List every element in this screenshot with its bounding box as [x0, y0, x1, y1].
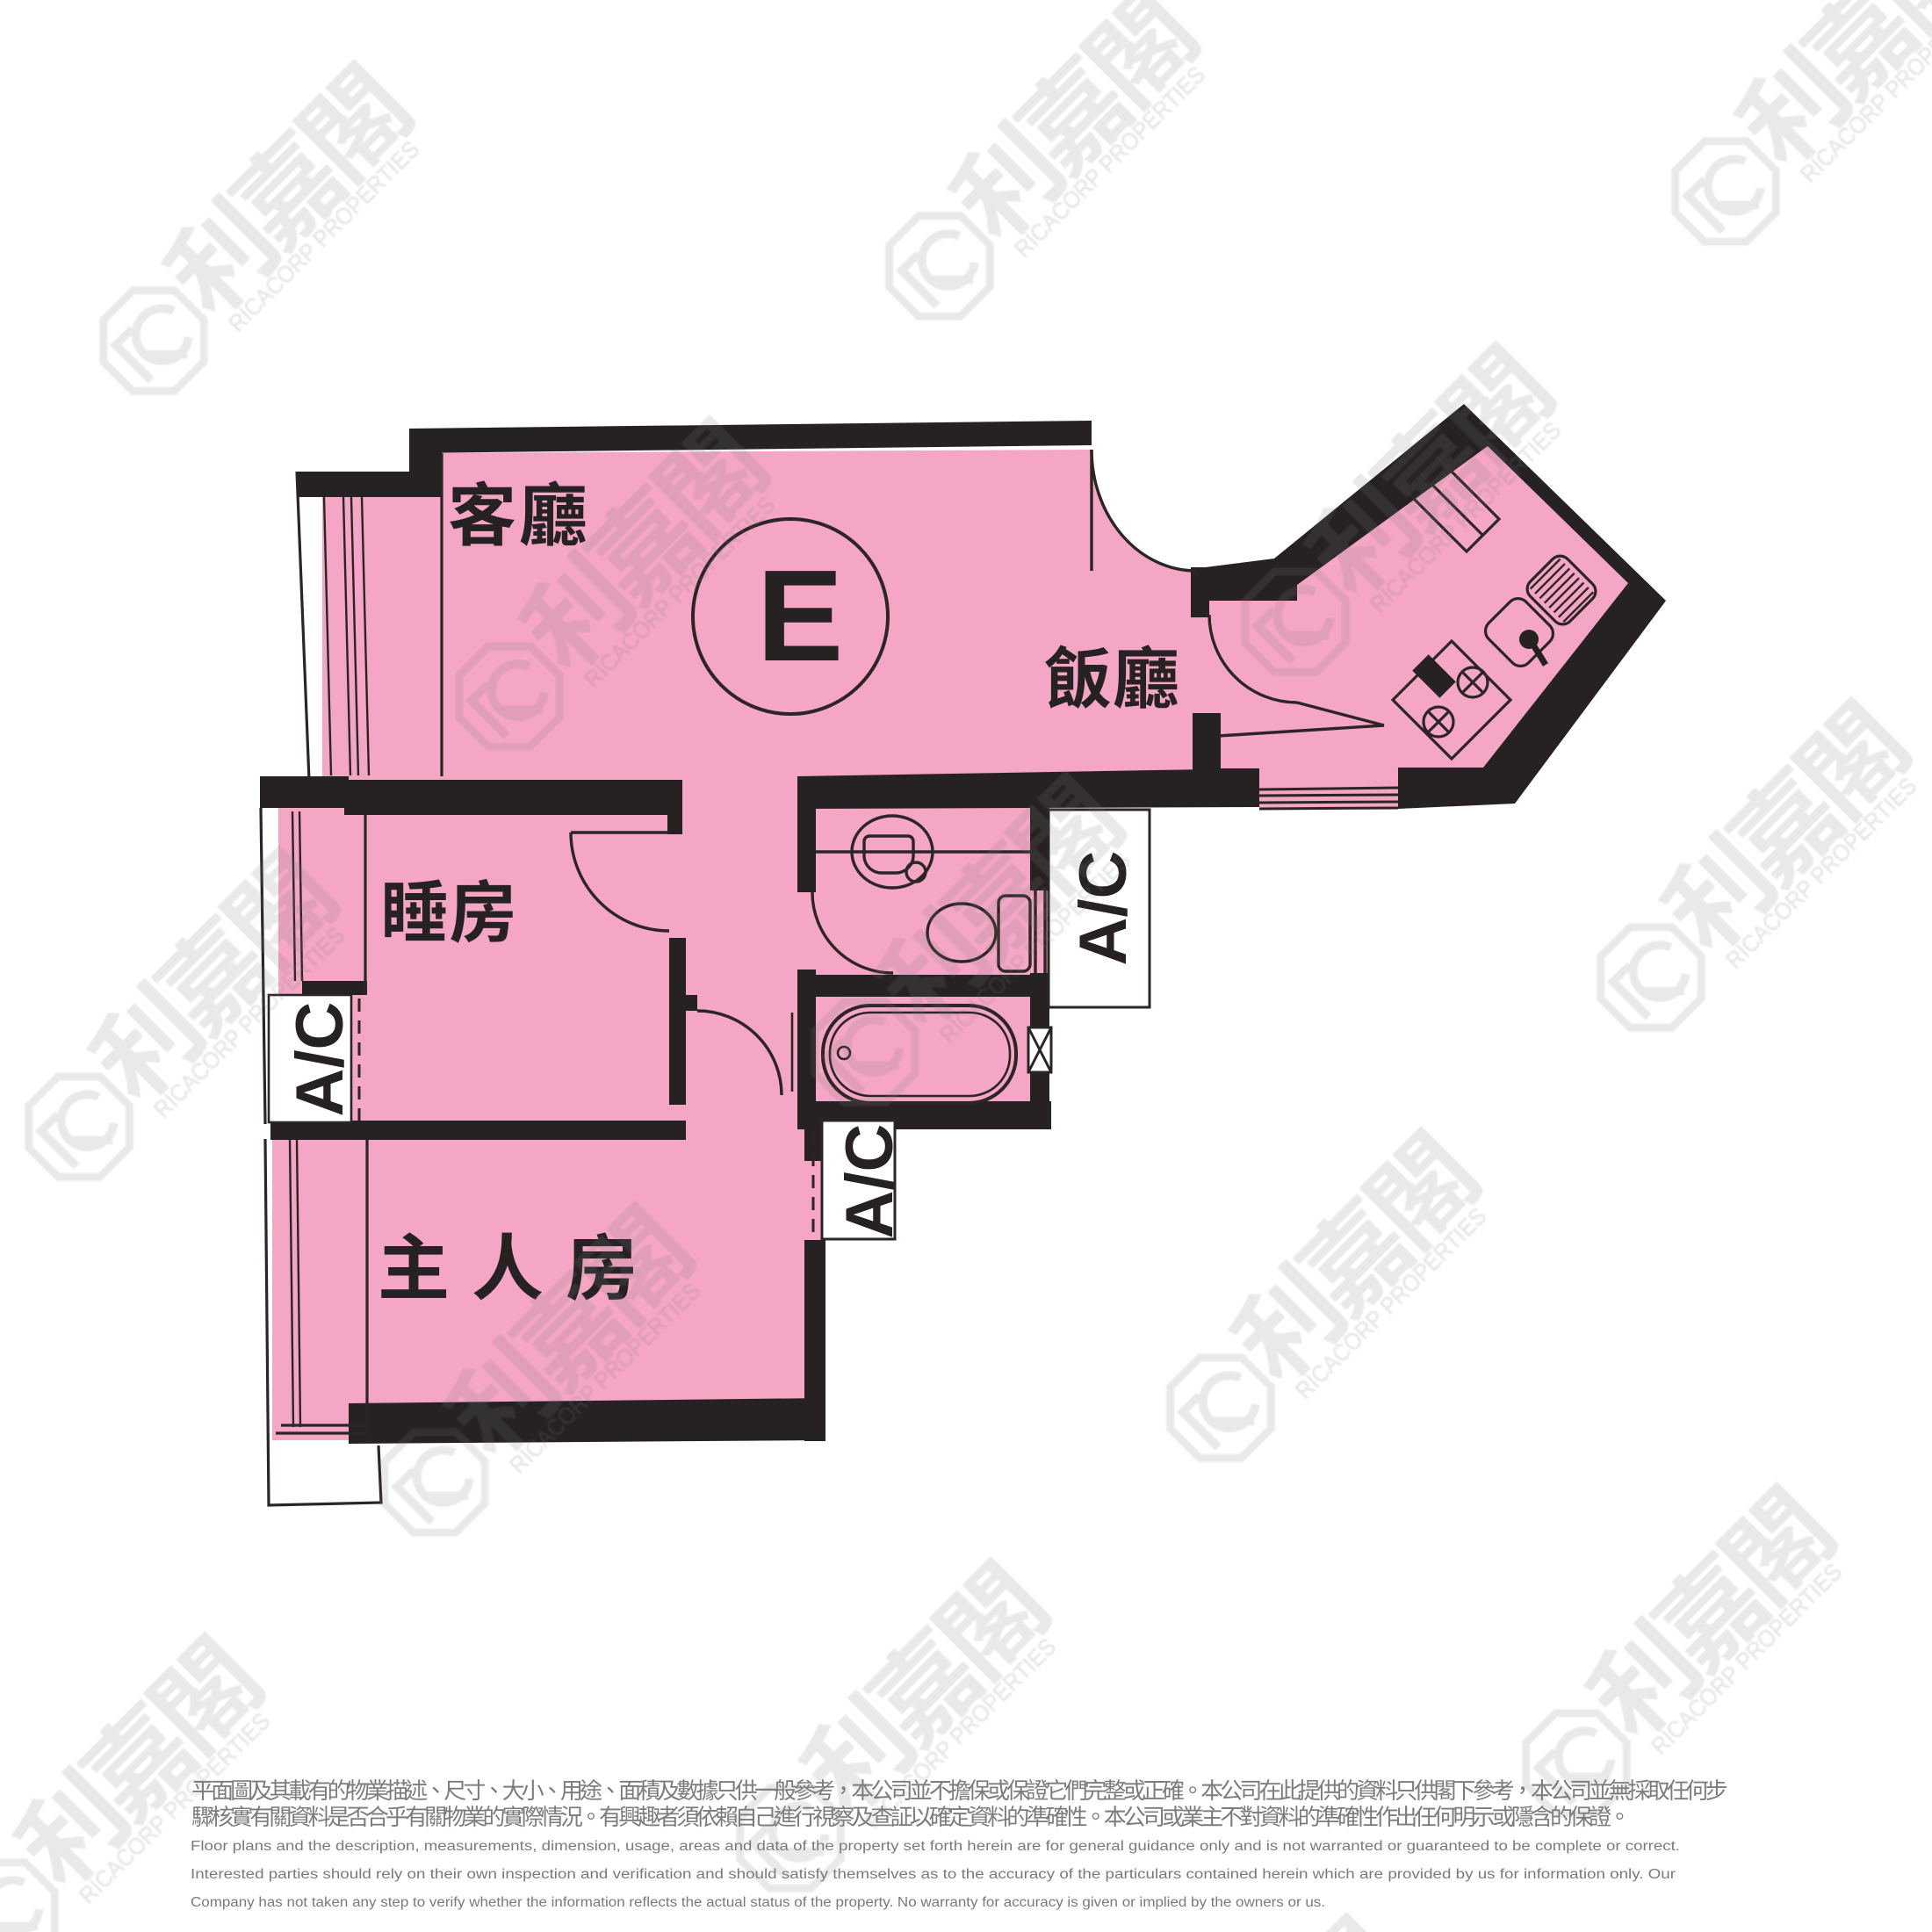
svg-text:Floor plans and the descriptio: Floor plans and the description, measure…	[191, 1839, 1680, 1854]
svg-text:A/C: A/C	[833, 1124, 907, 1239]
svg-text:Company has not taken any step: Company has not taken any step to verify…	[191, 1895, 1325, 1910]
svg-text:E: E	[757, 544, 844, 688]
svg-text:A/C: A/C	[283, 1002, 357, 1117]
svg-text:Interested parties should rely: Interested parties should rely on their …	[191, 1867, 1676, 1882]
